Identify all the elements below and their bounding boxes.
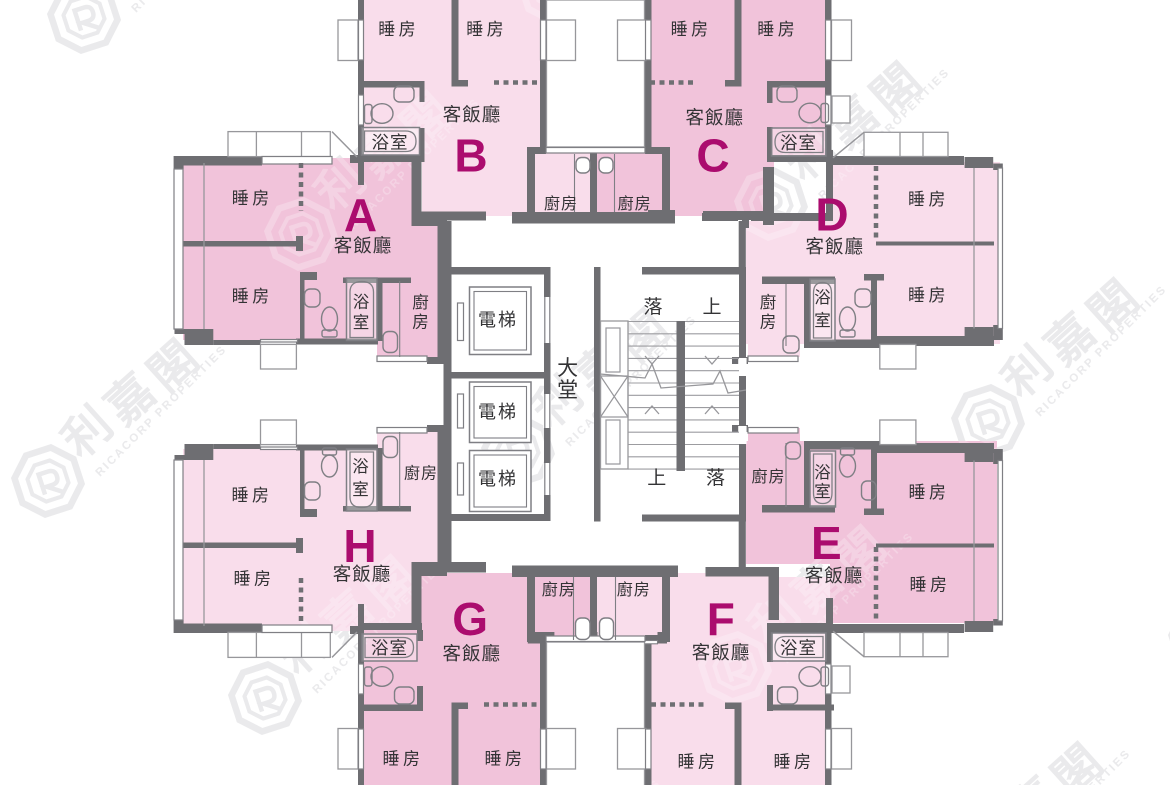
svg-text:G: G <box>452 593 488 645</box>
svg-text:睡房: 睡房 <box>774 753 815 772</box>
svg-text:廚房: 廚房 <box>617 580 651 599</box>
svg-text:客飯廳: 客飯廳 <box>692 642 751 663</box>
svg-text:電梯: 電梯 <box>478 402 518 422</box>
svg-text:浴: 浴 <box>814 288 831 307</box>
svg-text:睡房: 睡房 <box>671 20 712 39</box>
svg-text:A: A <box>344 189 377 241</box>
svg-text:浴: 浴 <box>814 463 831 482</box>
svg-text:C: C <box>696 130 729 182</box>
svg-text:睡房: 睡房 <box>232 486 273 505</box>
svg-text:睡房: 睡房 <box>909 483 950 502</box>
svg-text:室: 室 <box>353 313 370 332</box>
svg-text:睡房: 睡房 <box>232 189 273 208</box>
svg-text:客飯廳: 客飯廳 <box>443 104 502 125</box>
svg-text:廚房: 廚房 <box>542 580 576 599</box>
svg-text:B: B <box>454 130 487 182</box>
svg-text:客飯廳: 客飯廳 <box>442 643 501 664</box>
svg-text:H: H <box>343 520 376 572</box>
svg-text:睡房: 睡房 <box>678 753 719 772</box>
svg-text:廚: 廚 <box>760 292 777 312</box>
svg-text:睡房: 睡房 <box>910 576 951 595</box>
svg-text:睡房: 睡房 <box>383 750 424 769</box>
svg-text:E: E <box>811 517 842 569</box>
svg-text:浴室: 浴室 <box>372 133 409 153</box>
svg-text:廚: 廚 <box>412 292 429 312</box>
svg-text:客飯廳: 客飯廳 <box>685 107 744 128</box>
svg-text:睡房: 睡房 <box>908 190 949 209</box>
svg-text:上: 上 <box>647 467 666 489</box>
svg-text:浴室: 浴室 <box>780 133 817 153</box>
svg-text:室: 室 <box>814 311 831 330</box>
svg-text:電梯: 電梯 <box>478 310 518 330</box>
svg-text:上: 上 <box>702 296 721 318</box>
svg-text:睡房: 睡房 <box>232 287 273 306</box>
svg-text:浴室: 浴室 <box>780 638 817 658</box>
svg-text:睡房: 睡房 <box>234 570 275 589</box>
svg-text:電梯: 電梯 <box>478 469 518 489</box>
svg-text:房: 房 <box>760 313 777 332</box>
svg-text:落: 落 <box>706 467 725 489</box>
svg-text:堂: 堂 <box>557 379 578 402</box>
svg-text:浴: 浴 <box>352 457 369 476</box>
svg-text:廚房: 廚房 <box>618 194 652 213</box>
svg-text:D: D <box>815 189 848 241</box>
svg-text:浴室: 浴室 <box>371 638 408 658</box>
svg-text:大: 大 <box>557 357 578 380</box>
svg-text:睡房: 睡房 <box>466 20 507 39</box>
svg-text:睡房: 睡房 <box>908 286 949 305</box>
svg-text:睡房: 睡房 <box>378 20 419 39</box>
svg-text:落: 落 <box>643 296 662 318</box>
svg-text:F: F <box>707 593 735 645</box>
svg-text:廚房: 廚房 <box>404 464 438 483</box>
svg-text:睡房: 睡房 <box>757 20 798 39</box>
svg-text:浴: 浴 <box>353 293 370 312</box>
svg-text:房: 房 <box>412 313 429 332</box>
svg-text:室: 室 <box>814 482 831 501</box>
svg-text:室: 室 <box>352 480 369 499</box>
svg-text:廚房: 廚房 <box>751 467 785 486</box>
svg-text:睡房: 睡房 <box>485 750 526 769</box>
svg-text:廚房: 廚房 <box>544 194 578 213</box>
